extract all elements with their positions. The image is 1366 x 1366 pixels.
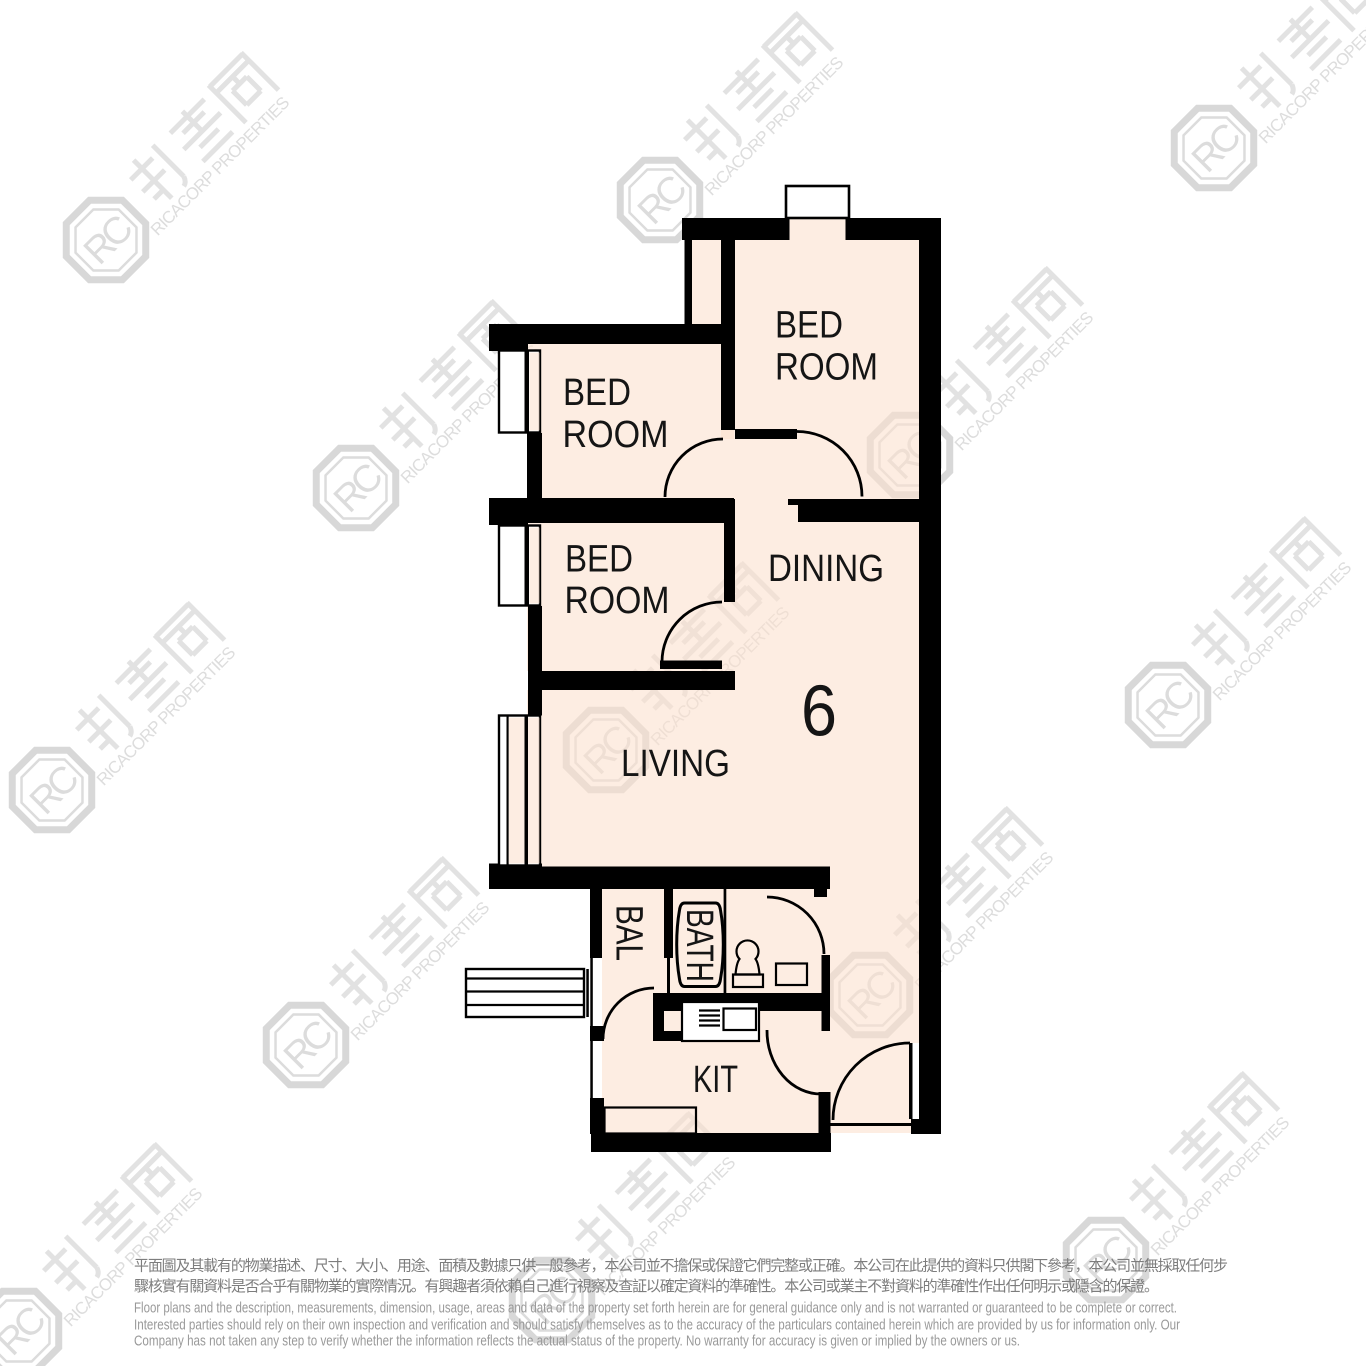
- svg-text:ROOM: ROOM: [565, 580, 670, 622]
- svg-text:Company has not taken any step: Company has not taken any step to verify…: [134, 1334, 1020, 1350]
- svg-text:BED: BED: [775, 305, 843, 347]
- svg-text:BAL: BAL: [608, 905, 650, 961]
- svg-text:6: 6: [801, 672, 837, 752]
- svg-text:Floor plans and the descriptio: Floor plans and the description, measure…: [134, 1301, 1177, 1317]
- svg-text:DINING: DINING: [768, 548, 884, 590]
- svg-text:驟核實有關資料是否合乎有關物業的實際情況。有興趣者須依賴自己: 驟核實有關資料是否合乎有關物業的實際情況。有興趣者須依賴自己進行視察及查証以確定…: [134, 1277, 1159, 1295]
- svg-text:BED: BED: [565, 539, 633, 581]
- svg-text:ROOM: ROOM: [775, 347, 878, 389]
- svg-text:BATH: BATH: [678, 909, 720, 982]
- svg-text:Interested parties should rely: Interested parties should rely on their …: [134, 1318, 1180, 1334]
- svg-text:LIVING: LIVING: [621, 743, 730, 785]
- svg-text:BED: BED: [563, 372, 631, 414]
- svg-text:KIT: KIT: [693, 1059, 738, 1101]
- svg-text:平面圖及其載有的物業描述、尺寸、大小、用途、面積及數據只供一: 平面圖及其載有的物業描述、尺寸、大小、用途、面積及數據只供一般參考，本公司並不擔…: [134, 1257, 1228, 1275]
- svg-text:ROOM: ROOM: [563, 414, 669, 456]
